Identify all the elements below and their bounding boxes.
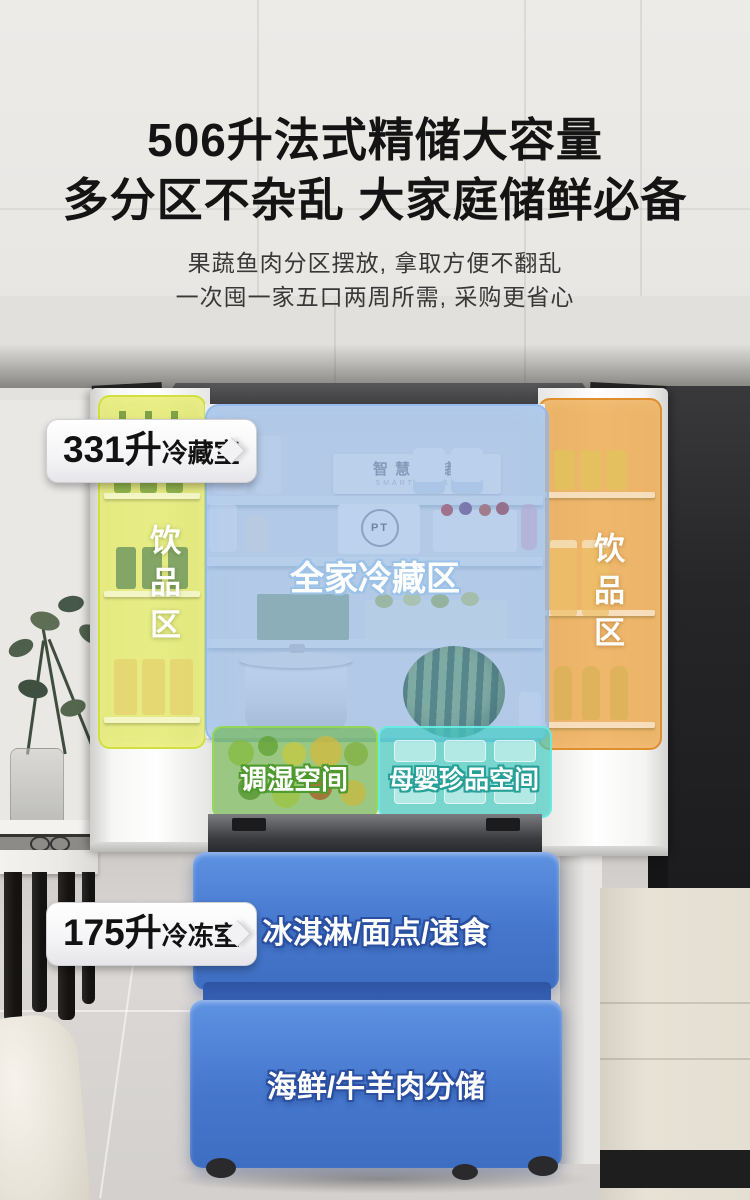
door-bottom-edge bbox=[538, 846, 668, 856]
book-stack bbox=[0, 820, 96, 837]
door-bottom-edge bbox=[90, 842, 210, 852]
freezer-drawer-bottom: 海鲜/牛羊肉分储 bbox=[190, 1000, 562, 1168]
can-icon bbox=[606, 450, 627, 490]
bottle-icon bbox=[582, 666, 600, 720]
bottle-icon bbox=[610, 666, 628, 720]
table-leg bbox=[4, 872, 22, 1022]
bottle-icon bbox=[554, 666, 572, 720]
freezer-volume-value: 175升 bbox=[63, 903, 162, 963]
title-line-1: 506升法式精储大容量 bbox=[0, 104, 750, 170]
carton-icon bbox=[142, 659, 165, 715]
freezer-bottom-label: 海鲜/牛羊肉分储 bbox=[190, 1062, 562, 1106]
table-leg bbox=[32, 872, 47, 1012]
door-shelf bbox=[545, 722, 655, 728]
fridge-side-panel bbox=[560, 856, 602, 1164]
can-icon bbox=[580, 450, 601, 490]
left-door-zone-label: 饮品区 bbox=[140, 524, 185, 650]
humidity-drawer-label: 调湿空间 bbox=[214, 758, 374, 797]
side-table-top bbox=[0, 850, 98, 874]
door-hinge bbox=[232, 818, 266, 831]
mother-baby-drawer-label: 母婴珍品空间 bbox=[380, 760, 548, 796]
door-shelf bbox=[545, 492, 655, 498]
caster-wheel bbox=[206, 1158, 236, 1178]
title-line-2: 多分区不杂乱 大家庭储鲜必备 bbox=[0, 164, 750, 230]
plant-leaf bbox=[6, 635, 36, 660]
can-icon bbox=[554, 450, 575, 490]
caster-wheel bbox=[452, 1164, 478, 1180]
plant-leaf bbox=[16, 677, 49, 701]
cabinet-shadow bbox=[0, 344, 750, 388]
jar-icon bbox=[444, 740, 486, 762]
cabinet-drawer-seam bbox=[600, 1002, 750, 1004]
built-in-cabinet bbox=[664, 386, 750, 890]
description-line-2: 一次囤一家五口两周所需, 采购更省心 bbox=[0, 278, 750, 312]
jar-icon bbox=[394, 740, 436, 762]
caster-wheel bbox=[528, 1156, 558, 1176]
door-shelf bbox=[104, 717, 200, 723]
center-zone-label: 全家冷藏区 bbox=[205, 551, 545, 600]
tile-line bbox=[0, 1010, 200, 1012]
fruit-dot bbox=[258, 736, 278, 756]
description-line-1: 果蔬鱼肉分区摆放, 拿取方便不翻乱 bbox=[0, 244, 750, 278]
door-hinge bbox=[486, 818, 520, 831]
plant-leaf bbox=[28, 608, 62, 633]
plant-leaf bbox=[57, 594, 85, 614]
cabinet-toe-kick bbox=[600, 1150, 750, 1188]
fridge-right-door: 饮品区 bbox=[538, 388, 668, 856]
fridge-volume-value: 331升 bbox=[63, 420, 162, 480]
right-door-zone-label: 饮品区 bbox=[584, 532, 629, 658]
can-icon bbox=[116, 547, 136, 589]
door-shelf bbox=[104, 493, 200, 499]
humidity-drawer-overlay: 调湿空间 bbox=[212, 726, 378, 818]
plant-leaf bbox=[58, 696, 88, 719]
juice-carton-icon bbox=[550, 540, 577, 616]
carton-icon bbox=[170, 659, 193, 715]
carton-icon bbox=[114, 659, 137, 715]
mother-baby-drawer-overlay: 母婴珍品空间 bbox=[378, 726, 552, 818]
cabinet-drawer-seam bbox=[600, 1058, 750, 1060]
jar-icon bbox=[494, 740, 536, 762]
product-poster: 饮品区 饮品区 智慧鲜储 SMART FRESH bbox=[0, 0, 750, 1200]
